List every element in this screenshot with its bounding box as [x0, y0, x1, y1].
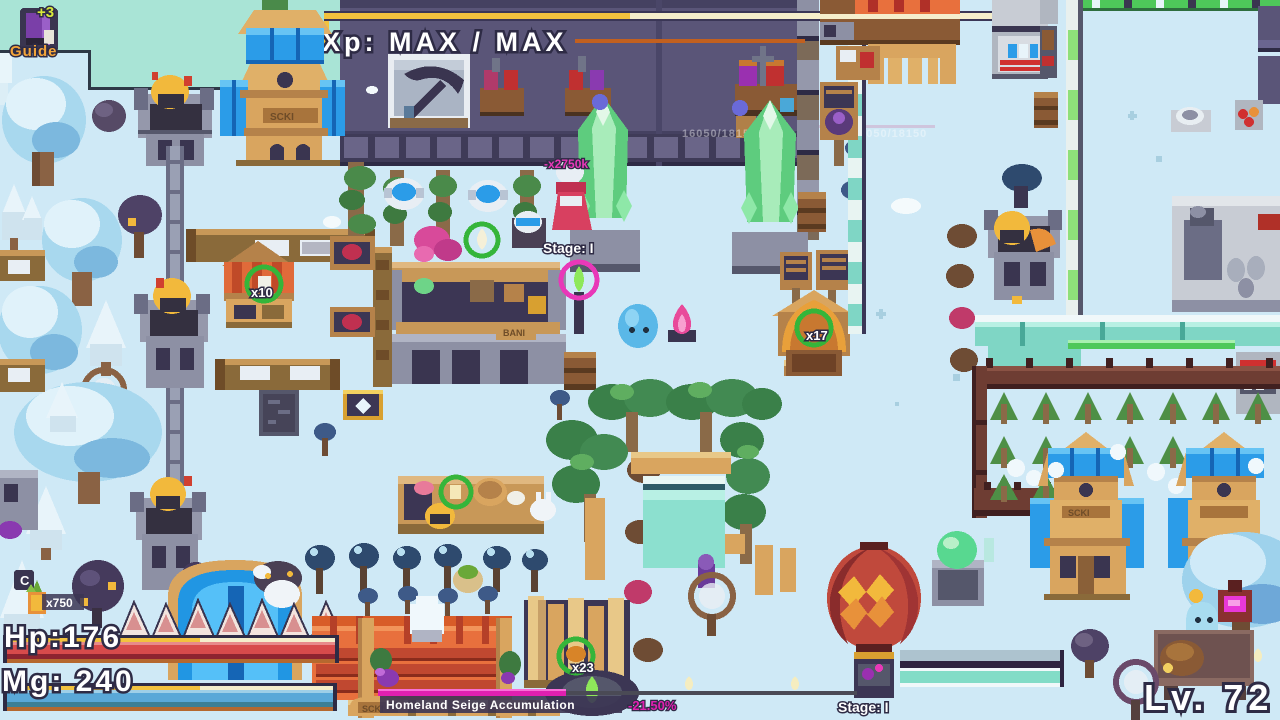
svg-text:x10: x10: [251, 285, 273, 300]
svg-text:+3: +3: [37, 4, 54, 21]
svg-text:x17: x17: [806, 328, 828, 343]
svg-text:x750: x750: [46, 596, 73, 610]
svg-text:BANI: BANI: [503, 328, 525, 338]
svg-text:C: C: [20, 573, 30, 588]
svg-text:x23: x23: [572, 660, 594, 675]
svg-text:Stage: I: Stage: I: [543, 240, 594, 256]
svg-text:Homeland Seige Accumulation: Homeland Seige Accumulation: [386, 698, 575, 712]
svg-text:SCKI: SCKI: [270, 112, 294, 123]
svg-text:Xp: MAX / MAX: Xp: MAX / MAX: [322, 27, 568, 57]
svg-text:Lv. 72: Lv. 72: [1144, 677, 1273, 718]
svg-text:-x2750k: -x2750k: [544, 157, 588, 171]
svg-text:Mg: 240: Mg: 240: [2, 665, 135, 698]
svg-text:-21.50%: -21.50%: [628, 698, 677, 713]
svg-text:Guide: Guide: [10, 43, 58, 60]
svg-text:Stage: I: Stage: I: [838, 699, 889, 715]
svg-text:SCKI: SCKI: [1068, 508, 1090, 518]
svg-text:Hp:176: Hp:176: [4, 621, 122, 654]
